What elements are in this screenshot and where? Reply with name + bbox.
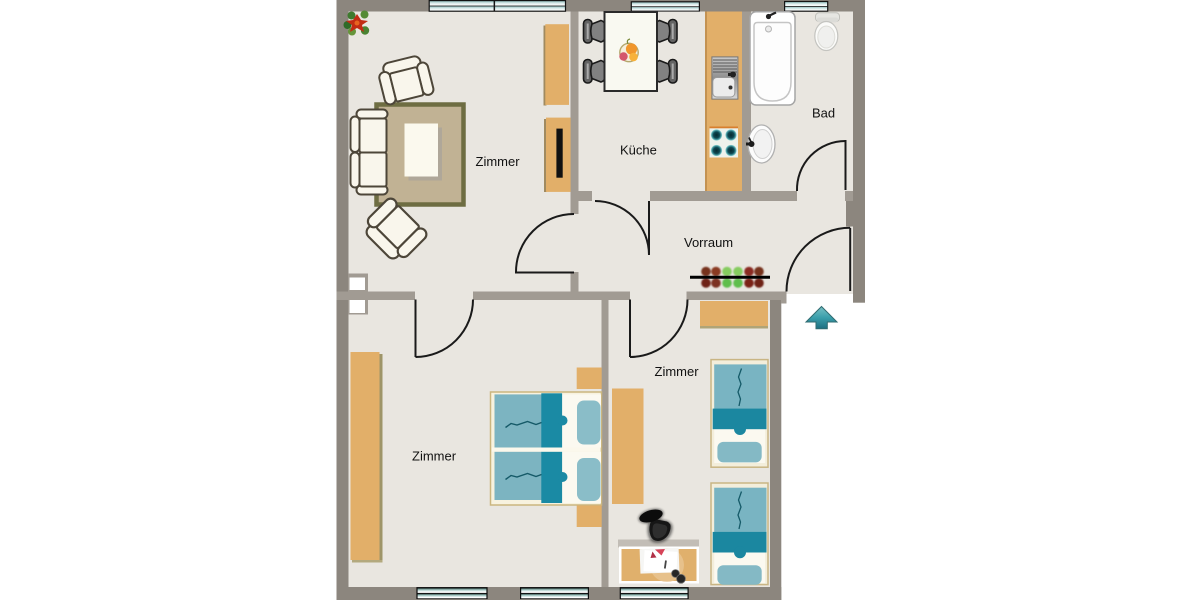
svg-text:Zimmer: Zimmer — [412, 449, 457, 464]
svg-text:Küche: Küche — [620, 143, 657, 158]
svg-text:Zimmer: Zimmer — [476, 154, 521, 169]
svg-text:Zimmer: Zimmer — [655, 364, 700, 379]
svg-text:Bad: Bad — [812, 106, 835, 121]
svg-text:Vorraum: Vorraum — [684, 235, 733, 250]
